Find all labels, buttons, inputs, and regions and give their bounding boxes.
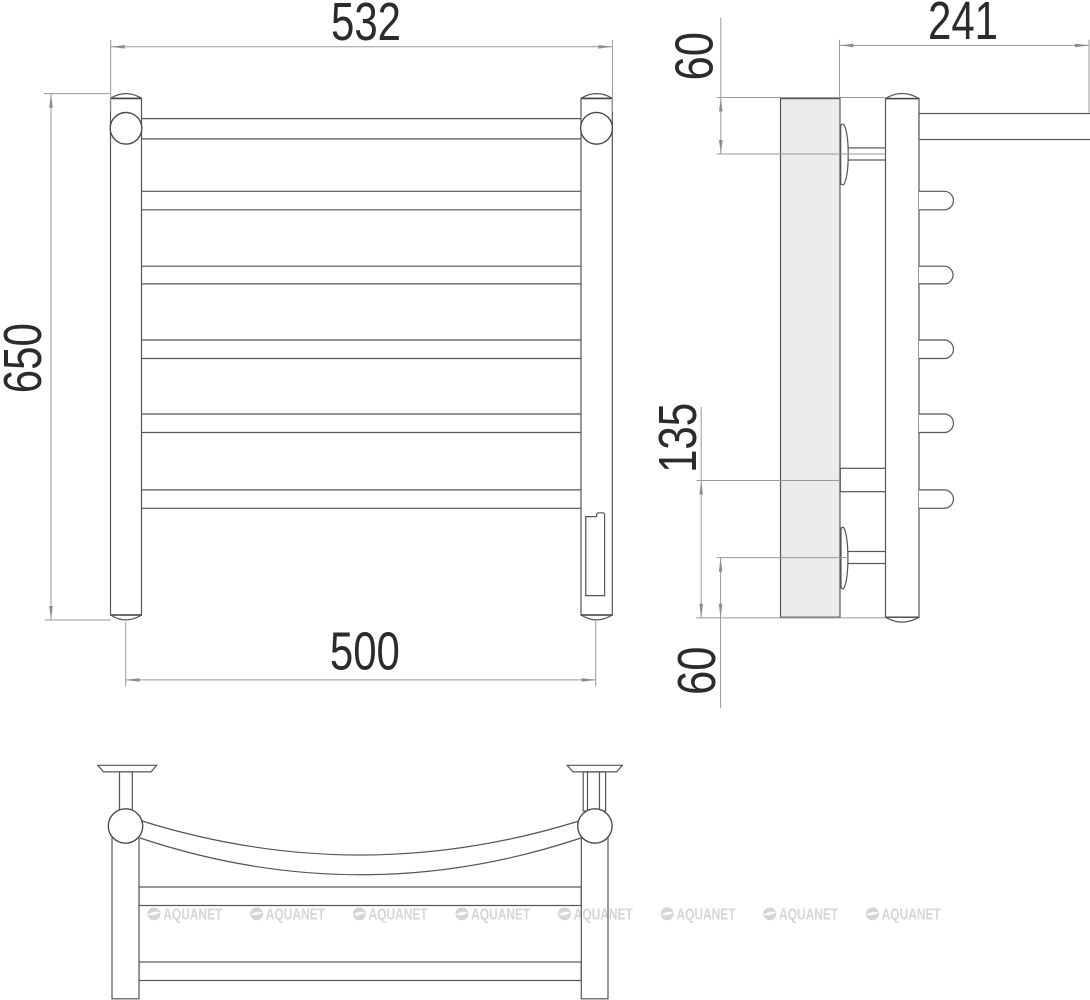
svg-text:AQUANET: AQUANET	[163, 907, 222, 924]
svg-text:60: 60	[665, 32, 725, 80]
svg-text:AQUANET: AQUANET	[369, 907, 428, 924]
svg-text:241: 241	[928, 0, 998, 51]
svg-text:650: 650	[0, 323, 53, 393]
svg-text:AQUANET: AQUANET	[677, 907, 736, 924]
svg-text:AQUANET: AQUANET	[882, 907, 941, 924]
svg-text:135: 135	[648, 403, 708, 473]
svg-text:532: 532	[331, 0, 401, 52]
svg-text:AQUANET: AQUANET	[574, 907, 633, 924]
svg-text:AQUANET: AQUANET	[779, 907, 838, 924]
svg-text:AQUANET: AQUANET	[266, 907, 325, 924]
svg-text:500: 500	[330, 622, 400, 682]
svg-text:60: 60	[667, 647, 727, 696]
svg-text:AQUANET: AQUANET	[471, 907, 530, 924]
